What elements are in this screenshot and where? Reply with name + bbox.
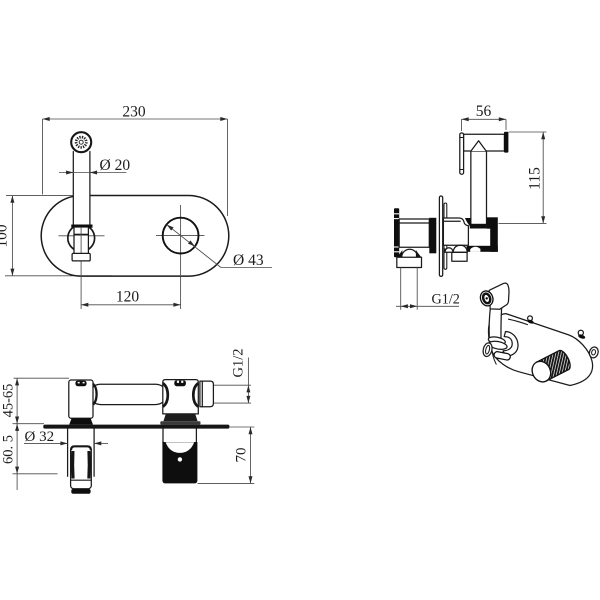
svg-text:120: 120 [116,289,140,306]
svg-text:115: 115 [527,167,544,190]
svg-text:230: 230 [122,104,146,121]
svg-text:45-65: 45-65 [1,384,17,418]
svg-text:Ø 20: Ø 20 [100,157,131,174]
svg-text:Ø 32: Ø 32 [25,429,55,445]
svg-text:G1/2: G1/2 [432,292,460,308]
svg-text:70: 70 [234,448,250,463]
svg-text:G1/2: G1/2 [231,349,247,378]
svg-text:Ø 43: Ø 43 [233,252,264,269]
svg-text:100: 100 [0,224,11,248]
svg-text:60. 5: 60. 5 [1,435,17,464]
svg-text:56: 56 [476,103,492,120]
